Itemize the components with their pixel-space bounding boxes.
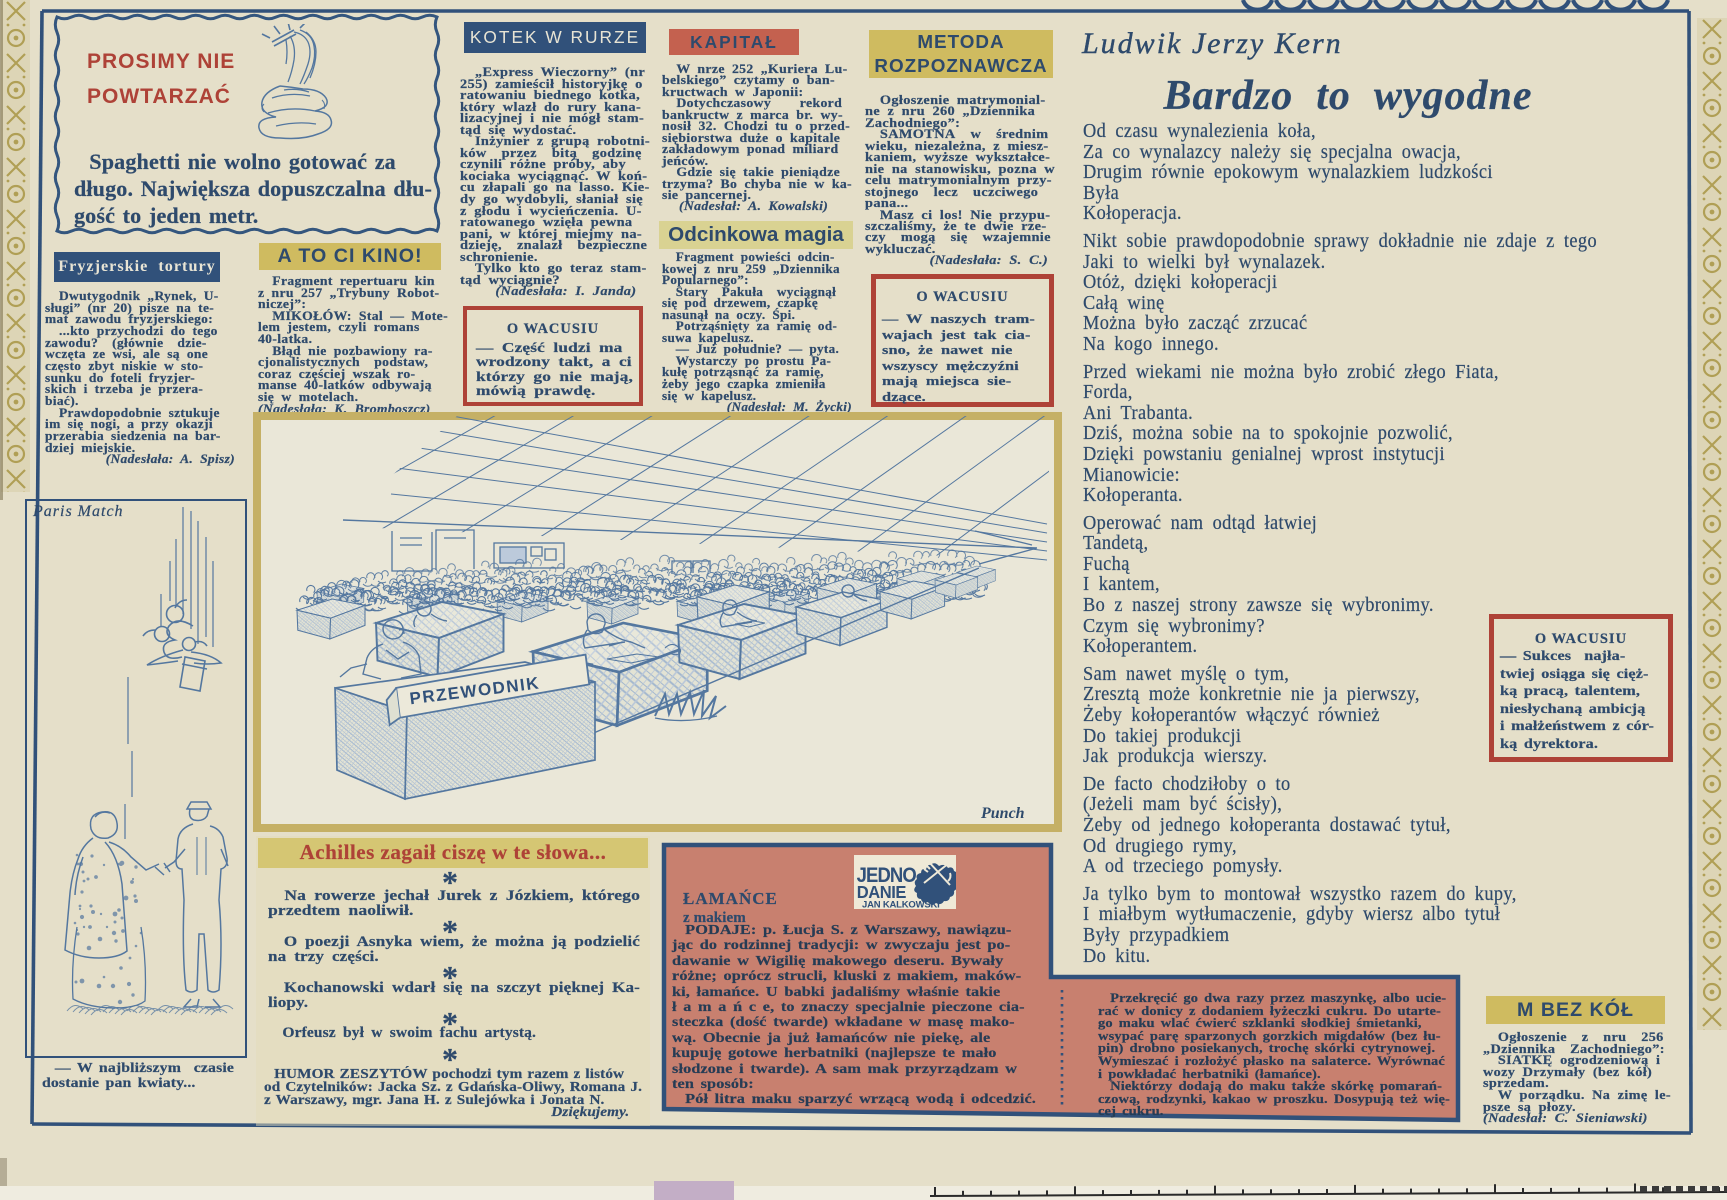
svg-text:Punch: Punch	[980, 805, 1025, 820]
